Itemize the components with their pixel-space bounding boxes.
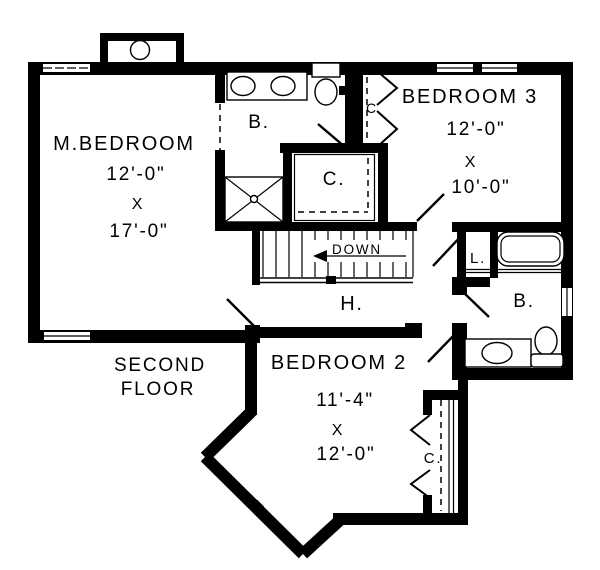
bath-toilet-wall	[345, 62, 363, 148]
bath-right-sink	[482, 343, 512, 364]
mbedroom-name: M.BEDROOM	[53, 133, 195, 155]
floor-plan-sheet: M.BEDROOM 12'-0" X 17'-0" BEDROOM 3 12'-…	[0, 0, 600, 570]
closet-c-left-wall	[283, 143, 292, 231]
bedroom2-times: X	[332, 422, 344, 439]
bedroom2-closet-bifold-1	[411, 415, 430, 445]
right-wall	[561, 62, 573, 380]
stair-left-wall	[252, 222, 260, 285]
bedroom2-bottom-wall	[333, 513, 468, 525]
floor-title-line2: FLOOR	[121, 379, 195, 400]
bath-door-jamb	[339, 86, 346, 95]
bath-top-sink-1	[231, 77, 255, 96]
left-wall	[28, 62, 40, 343]
floor-title-line1: SECOND	[114, 355, 206, 376]
closet-top-label: C.	[323, 169, 346, 190]
mbedroom-width: 12'-0"	[106, 164, 165, 185]
bedroom2-length: 12'-0"	[316, 444, 375, 465]
hall-bottom-wall	[247, 327, 422, 338]
bath-closet-divider-wall	[280, 143, 388, 153]
bedroom2-left-wall	[245, 330, 257, 415]
bath-right-bottom-wall	[452, 368, 573, 380]
walls	[28, 33, 573, 554]
bedroom2-closet-label: C.	[424, 450, 443, 467]
bedroom2-closet-bifold-2	[411, 470, 430, 498]
bedroom2-closet-right-wall	[458, 378, 468, 525]
bedroom3-closet-label: C	[366, 100, 378, 116]
bath-top-sink-2	[271, 77, 295, 96]
bedroom2-closet-stub-bottom	[423, 495, 432, 518]
bedroom2-closet-stub-top	[423, 390, 432, 415]
mbedroom-length: 17'-0"	[109, 221, 168, 242]
bath-right-label: B.	[513, 291, 535, 312]
bedroom3-width: 12'-0"	[446, 119, 505, 140]
floor-plan-drawing: M.BEDROOM 12'-0" X 17'-0" BEDROOM 3 12'-…	[0, 0, 600, 570]
bedroom3-closet-bifold-2	[377, 111, 397, 147]
stairs-down-label: DOWN	[332, 242, 382, 257]
shower-drain	[251, 196, 258, 203]
bedroom3-door	[417, 194, 444, 221]
bath-right-toilet-tank	[531, 354, 563, 367]
hall-bottom-endcap	[405, 323, 422, 338]
bathtub	[497, 232, 564, 266]
bath-top-label: B.	[248, 112, 270, 133]
bath-right-toilet-bowl	[535, 327, 557, 355]
bedroom2-angle-wall	[205, 410, 253, 457]
chimney-flue	[131, 41, 150, 60]
bedroom2-angle-wall-2	[303, 521, 339, 554]
bedroom3-hall-wall	[452, 222, 573, 232]
hall-label: H.	[340, 293, 364, 315]
bath-right-door	[463, 292, 489, 317]
stair-newel-post	[326, 276, 336, 284]
bedroom3-closet-bifold-1	[377, 71, 397, 105]
bay-window-mullion	[253, 504, 260, 511]
mbedroom-times: X	[132, 196, 144, 213]
mbedroom-door	[227, 299, 255, 327]
bedroom3-name: BEDROOM 3	[402, 86, 538, 108]
staircase	[252, 231, 413, 284]
bedroom3-length: 10'-0"	[451, 177, 510, 198]
bedroom3-west-wall	[378, 143, 388, 231]
bedroom2-name: BEDROOM 2	[271, 352, 407, 374]
bath-top-toilet-bowl	[315, 79, 337, 105]
linen-closet-label: L.	[470, 250, 486, 267]
bedroom3-times: X	[465, 154, 477, 171]
bath-top-toilet-tank	[312, 63, 340, 77]
bedroom2-width: 11'-4"	[316, 390, 374, 411]
